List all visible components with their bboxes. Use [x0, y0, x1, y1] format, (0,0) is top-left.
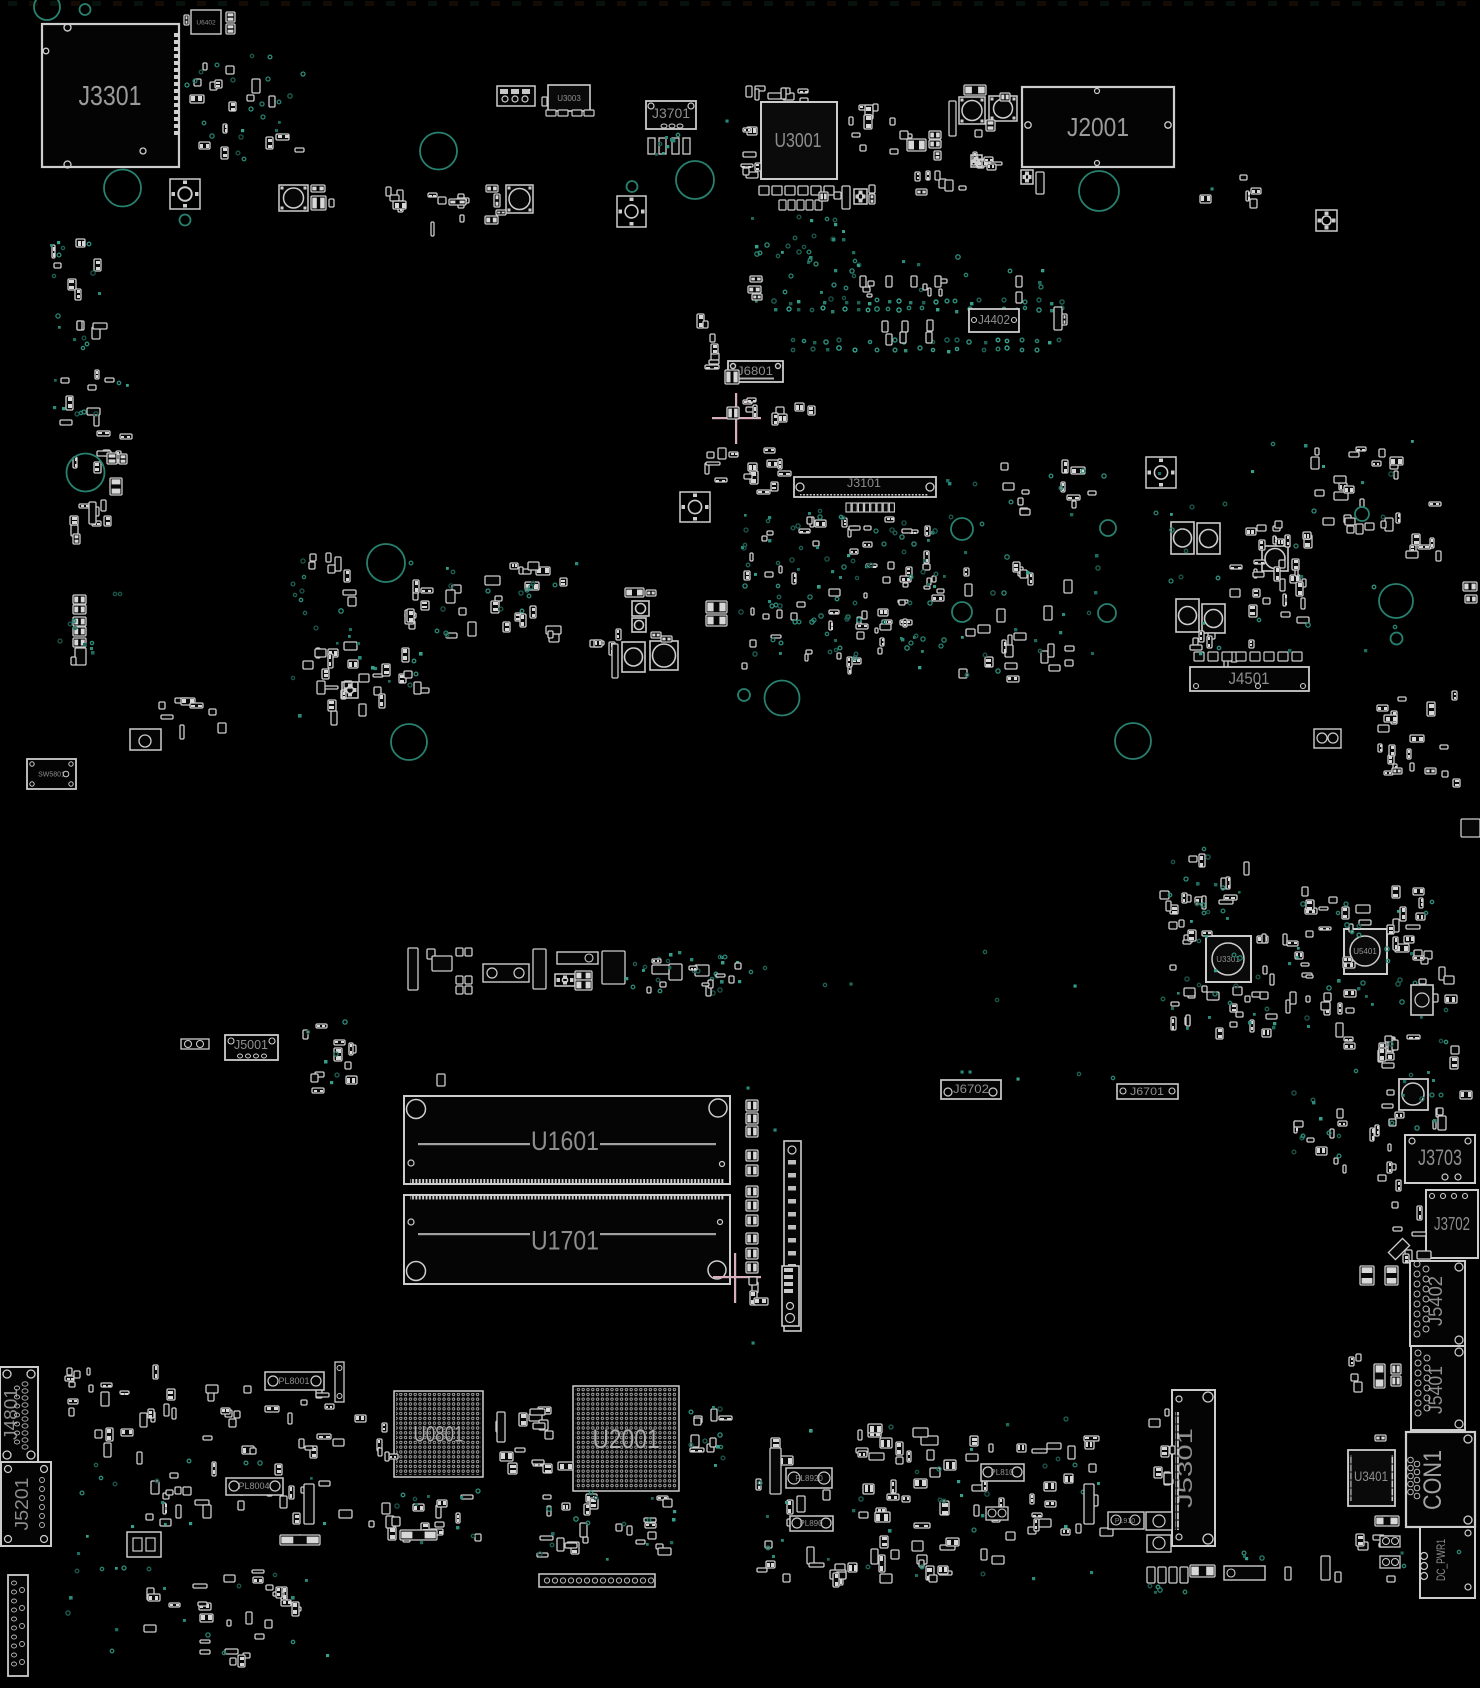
- svg-text:DC_PWR1: DC_PWR1: [1434, 1539, 1448, 1581]
- svg-text:U1601: U1601: [531, 1126, 599, 1156]
- svg-text:J4402: J4402: [978, 312, 1010, 327]
- svg-text:CON1: CON1: [1419, 1450, 1447, 1510]
- svg-text:U0801: U0801: [414, 1422, 464, 1447]
- svg-text:J6701: J6701: [1130, 1086, 1164, 1098]
- svg-text:J4801: J4801: [1, 1388, 21, 1440]
- svg-text:PL8001: PL8001: [278, 1376, 309, 1386]
- svg-text:J5201: J5201: [12, 1478, 32, 1531]
- svg-text:U6402: U6402: [196, 19, 216, 26]
- svg-text:U3001: U3001: [775, 130, 822, 152]
- svg-text:J3301: J3301: [79, 80, 142, 111]
- svg-text:PL910: PL910: [1115, 1518, 1135, 1525]
- svg-text:J3702: J3702: [1434, 1214, 1470, 1234]
- svg-text:PL8004: PL8004: [238, 1481, 269, 1491]
- svg-text:U3003: U3003: [557, 94, 581, 103]
- svg-text:J3703: J3703: [1418, 1145, 1462, 1170]
- svg-text:J6801: J6801: [737, 364, 773, 378]
- svg-text:J6702: J6702: [953, 1082, 989, 1096]
- svg-text:SW5801: SW5801: [38, 771, 65, 778]
- svg-text:PL810: PL810: [990, 1468, 1014, 1477]
- svg-text:PL8920: PL8920: [795, 1474, 823, 1483]
- svg-text:U3301: U3301: [1216, 955, 1240, 964]
- svg-text:PL890: PL890: [799, 1519, 823, 1528]
- svg-text:J4501: J4501: [1229, 669, 1270, 688]
- svg-text:J3701: J3701: [652, 105, 690, 121]
- svg-text:U3401: U3401: [1354, 1468, 1388, 1484]
- svg-text:J3101: J3101: [847, 476, 881, 490]
- svg-text:U2001: U2001: [593, 1424, 660, 1454]
- svg-text:J2001: J2001: [1067, 112, 1129, 142]
- svg-text:U1701: U1701: [531, 1226, 599, 1256]
- svg-text:U5401: U5401: [1353, 947, 1377, 956]
- svg-text:J5001: J5001: [234, 1037, 268, 1052]
